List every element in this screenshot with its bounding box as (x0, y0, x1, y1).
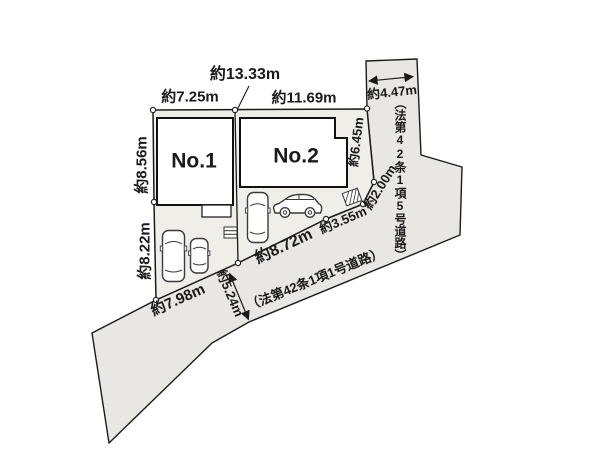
dim-top-total: 約13.33m (210, 67, 280, 83)
plot-diagram: 約13.33m 約7.25m 約11.69m 約8.56m 約8.22m 約7.… (0, 0, 600, 460)
plot-no1-label: No.1 (171, 151, 217, 172)
plot-no2-label: No.2 (273, 146, 319, 167)
car-top-view-icon (245, 193, 270, 243)
car-top-view-icon (189, 239, 210, 274)
dim-left-lower: 約8.22m (138, 222, 153, 280)
building-no1-porch (202, 205, 231, 217)
car-top-view-icon (160, 231, 186, 282)
dim-top-no2: 約11.69m (271, 91, 336, 106)
dim-13-33-leader-line (236, 86, 249, 112)
dim-top-no1: 約7.25m (161, 90, 219, 105)
dim-left-upper: 約8.56m (135, 136, 150, 194)
stairs-icon (224, 227, 237, 238)
right-road-label: （法第42条1項5号道路） (394, 97, 406, 261)
